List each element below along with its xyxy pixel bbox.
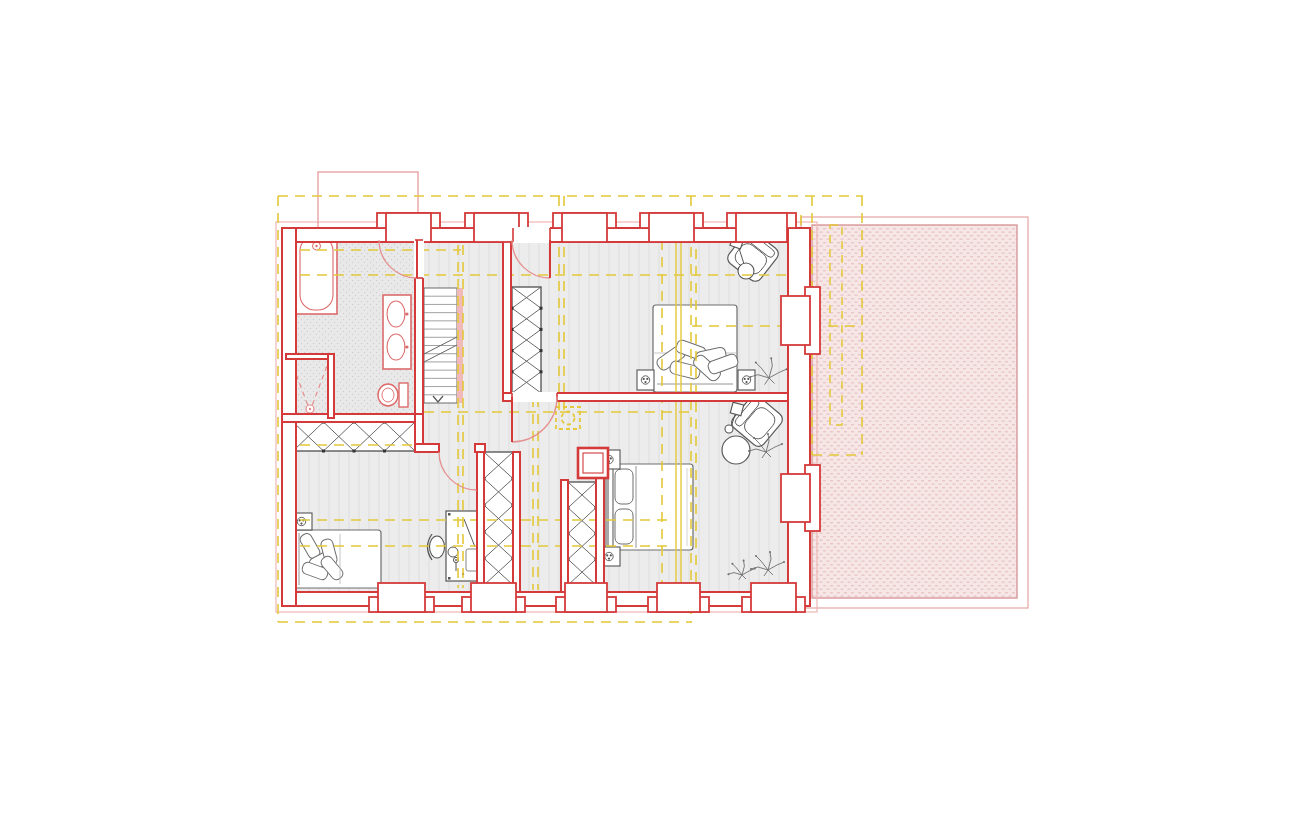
wall-ext-bottom xyxy=(282,592,810,606)
drawing-viewport xyxy=(0,0,1300,824)
window-bottom xyxy=(556,583,616,612)
window-top xyxy=(727,213,796,242)
wall-shower-top xyxy=(286,354,332,359)
wardrobe-niche-west xyxy=(483,452,515,585)
nightstand xyxy=(637,370,654,390)
window-bottom xyxy=(742,583,805,612)
wardrobe-hall-row xyxy=(293,421,415,453)
vanity-double-sink xyxy=(383,295,411,369)
desk-chair xyxy=(428,534,445,560)
bed-bedroom-sw xyxy=(292,530,381,588)
wardrobe-niche-east xyxy=(567,482,598,585)
chimney-new xyxy=(578,448,608,478)
window-top xyxy=(640,213,703,242)
window-right xyxy=(781,287,820,354)
wall-door-stub xyxy=(475,444,485,452)
plan-layers xyxy=(276,172,1028,622)
wall-niche-e-left xyxy=(561,480,568,592)
wardrobe-bedroom-ne xyxy=(511,287,543,393)
floor-plan xyxy=(0,0,1300,824)
stairs xyxy=(424,288,457,403)
nightstand xyxy=(738,370,755,390)
window-bottom xyxy=(648,583,709,612)
window-top xyxy=(377,213,440,242)
wall-bathroom-south xyxy=(282,414,423,422)
wall-niche-w-left xyxy=(477,452,484,592)
window-bottom xyxy=(369,583,434,612)
bathtub xyxy=(296,232,337,314)
layer-symbols xyxy=(578,448,608,478)
toilet xyxy=(378,383,408,407)
wall-shower-right xyxy=(328,354,334,418)
window-top xyxy=(553,213,616,242)
window-right xyxy=(781,465,820,531)
wall-hall-corner-h xyxy=(415,444,439,452)
wall-niche-w-right xyxy=(513,452,520,592)
bed-bedroom-se xyxy=(606,464,693,550)
window-bottom xyxy=(462,583,525,612)
wall-hall-east xyxy=(503,232,511,397)
wall-ext-right xyxy=(788,228,810,606)
side-table xyxy=(722,436,750,464)
